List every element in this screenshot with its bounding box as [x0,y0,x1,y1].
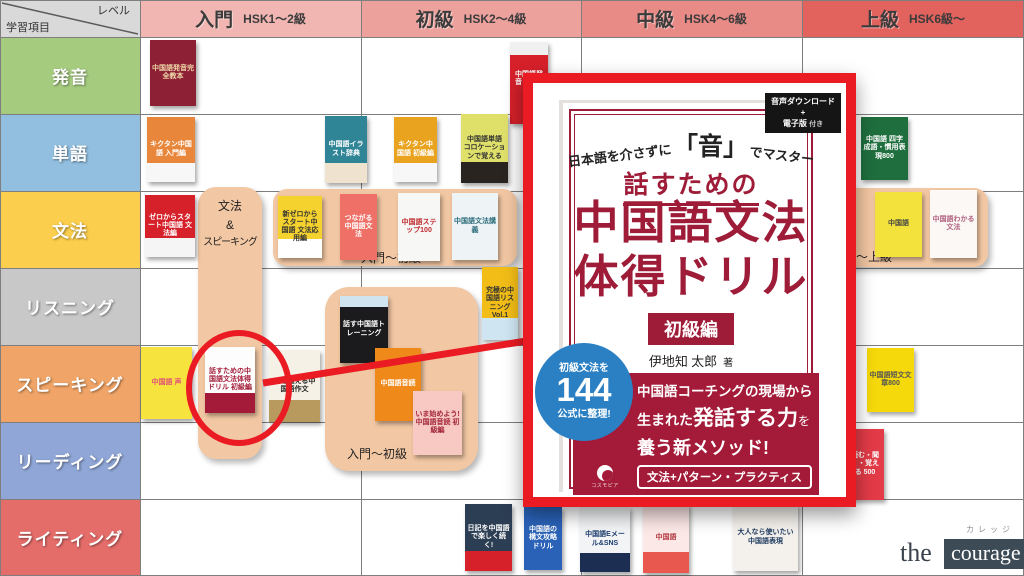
book-cover-bottom-strip [325,163,367,183]
book-cover: 中国語 [643,504,689,573]
book-cover-bottom-strip [461,162,508,183]
row-label-bunpo: 文法 [0,191,140,268]
grid-line [0,422,1024,423]
level-hsk-range: HSK6級〜 [909,10,965,27]
book-title: つながる中国語文法 [340,214,377,240]
formula-count-badge: 初級文法を 144 公式に整理! [535,343,633,441]
level-name: 上級 [861,5,899,32]
featured-book-cover: 音声ダウンロード + 電子版 付き 日本語を介さずに 「音」 でマスター 話すた… [563,103,819,495]
book-cover: キクタン中国語 初級編 [394,117,437,182]
level-name: 入門 [195,5,233,32]
band-line1: 中国語コーチングの現場から [637,380,815,400]
level-header-jokyu: 上級 HSK6級〜 [802,0,1024,37]
book-cover-bottom-strip [482,318,518,340]
badge-suffix: 付き [809,121,823,128]
book-title: 中国語わかる文法 [930,215,977,233]
band-line3: 養う新メソッド! [637,434,815,460]
book-title: いま始めよう! 中国語音読 初級編 [413,410,462,436]
book-cover: 中国語短文文章800 [867,348,914,412]
book-title: 中国語 四字成語・慣用表現800 [861,135,908,161]
book-title: 中国語発音完全教本 [150,64,196,82]
grid-line [0,0,1024,1]
book-title: 話す中国語トレーニング [340,320,388,338]
level-header-chukyu: 中級 HSK4〜6級 [581,0,802,37]
book-title: 中国語 声 [150,378,184,388]
level-hsk-range: HSK2〜4級 [464,10,527,27]
book-cover: 中国語ステップ100 [398,193,440,261]
book-cover-bottom-strip [147,163,195,183]
book-cover: 新ゼロからスタート中国語 文法応用編 [278,196,322,258]
book-title: キクタン中国語 初級編 [394,140,437,158]
band-line2: 生まれた発話する力を [637,402,815,432]
band-label-line: 文法 [198,197,262,216]
row-label-writing: ライティング [0,499,140,576]
learning-roadmap-chart: レベル 学習項目 入門 HSK1〜2級 初級 HSK2〜4級 中級 HSK4〜6… [0,0,1024,576]
row-label-reading: リーディング [0,422,140,499]
book-cover: 中国語イラスト辞典 [325,116,367,183]
corner-label-level: レベル [97,2,130,18]
audio-download-badge: 音声ダウンロード + 電子版 付き [765,93,841,133]
book-cover: 日記を中国語で楽しく続く! [465,504,512,571]
book-title: 中国語の構文攻略ドリル [524,525,562,551]
corner-label-item: 学習項目 [6,19,50,35]
level-header-nyumon: 入門 HSK1〜2級 [140,0,361,37]
book-cover: 中国語文法講義 [452,193,498,260]
level-name: 中級 [636,5,674,32]
book-cover: いま始めよう! 中国語音読 初級編 [413,391,462,455]
band-label-line: スピーキング [198,235,262,251]
publisher-logo-icon [597,465,613,481]
logo-the: the [900,538,932,568]
edition-badge: 初級編 [563,313,819,345]
tagline-sound: 「音」 [673,127,748,163]
book-title: ゼロからスタート中国語 文法編 [145,213,195,239]
book-cover: 中国語発音完全教本 [150,40,196,106]
book-title: 中国語短文文章800 [867,371,914,389]
badge-plus: + [767,108,839,119]
book-title: 中国語イラスト辞典 [325,140,367,158]
book-title: 中国語文法講義 [452,217,498,235]
badge-bottom: 公式に整理! [535,405,633,420]
row-label-tango: 単語 [0,114,140,191]
book-title: 中国語ステップ100 [398,218,440,236]
method-box: 文法+パターン・プラクティス [637,465,812,489]
cover-title-line2: 体得ドリル [563,255,819,300]
highlight-circle [186,330,292,446]
level-header-shokyu: 初級 HSK2〜4級 [361,0,581,37]
book-title: 中国語 [654,533,679,543]
book-title: 新ゼロからスタート中国語 文法応用編 [278,210,322,244]
cover-tagline: 日本語を介さずに 「音」 でマスター [563,131,819,167]
grid-line [0,37,1024,38]
book-title: 大人なら使いたい中国語表現 [733,528,798,546]
badge-line: 音声ダウンロード [767,97,839,108]
book-title: 中国語Eメール&SNS [580,530,630,548]
tagline-post: でマスター [748,141,815,168]
book-cover: 中国語Eメール&SNS [580,507,630,572]
publisher-logo: コスモピア [585,465,625,489]
book-title: 日記を中国語で楽しく続く! [465,524,512,550]
book-cover-bottom-strip [580,553,630,573]
book-cover: 中国語わかる文法 [930,190,977,258]
row-label-speaking: スピーキング [0,345,140,422]
book-cover: つながる中国語文法 [340,194,377,260]
book-title: 究極の中国語リスニング Vol.1 [482,286,518,320]
book-cover: 中国語 声 [141,347,192,419]
grid-line [0,345,1024,346]
book-title: 中国語単語 コロケーションで覚える [461,135,508,161]
corner-header: レベル 学習項目 [0,0,140,37]
featured-book-popup: 音声ダウンロード + 電子版 付き 日本語を介さずに 「音」 でマスター 話すた… [523,73,856,507]
badge-number: 144 [535,374,633,405]
publisher-name: コスモピア [585,482,625,489]
row-label-hatsuon: 発音 [0,37,140,114]
level-range-label: 入門〜初級 [347,445,407,462]
book-cover: 中国語 四字成語・慣用表現800 [861,117,908,180]
logo-courage: courage [944,539,1024,569]
logo-katakana: カレッジ [966,524,1014,535]
book-cover-bottom-strip [394,163,437,183]
book-cover: ゼロからスタート中国語 文法編 [145,195,195,257]
book-cover: 中国語の構文攻略ドリル [524,507,562,570]
book-title: キクタン中国語 入門編 [147,140,195,158]
book-cover-top-strip [510,42,548,55]
band-label-line: & [198,216,262,235]
book-cover: 中国語 [875,192,922,257]
row-label-listening: リスニング [0,268,140,345]
book-cover-bottom-strip [465,551,512,571]
level-hsk-range: HSK4〜6級 [684,10,747,27]
grid-line [140,0,141,576]
book-cover: 大人なら使いたい中国語表現 [733,504,798,571]
book-cover: 中国語単語 コロケーションで覚える [461,114,508,183]
badge-line: 電子版 [783,119,807,128]
level-hsk-range: HSK1〜2級 [243,10,306,27]
book-title: 中国語音読 [379,379,418,389]
book-cover: 究極の中国語リスニング Vol.1 [482,267,518,340]
book-cover-bottom-strip [145,238,195,257]
book-cover: キクタン中国語 入門編 [147,117,195,182]
book-cover-top-strip [340,296,388,307]
book-cover-bottom-strip [643,552,689,573]
book-title: 中国語 [886,219,911,229]
cover-title-line1: 中国語文法 [563,201,819,246]
the-courage-logo: カレッジ the courage [900,524,1020,570]
level-name: 初級 [416,5,454,32]
grid-line [0,0,1,576]
